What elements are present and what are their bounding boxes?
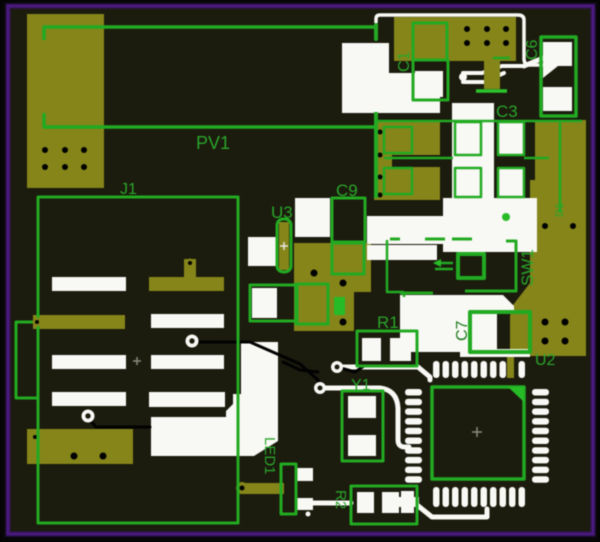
svg-text:SW1: SW1 xyxy=(518,249,537,286)
svg-text:C6: C6 xyxy=(524,39,541,60)
svg-text:C3: C3 xyxy=(496,102,518,121)
svg-text:C7: C7 xyxy=(454,320,471,341)
svg-text:C1: C1 xyxy=(396,51,413,72)
svg-text:PV1: PV1 xyxy=(196,133,230,153)
svg-text:J1: J1 xyxy=(120,181,137,198)
svg-text:U3: U3 xyxy=(271,203,293,222)
svg-text:LED1: LED1 xyxy=(261,437,278,475)
svg-text:Y1: Y1 xyxy=(351,377,371,394)
svg-text:D1: D1 xyxy=(554,203,566,217)
svg-text:U2: U2 xyxy=(535,352,556,369)
svg-text:R1: R1 xyxy=(377,313,399,332)
svg-text:C9: C9 xyxy=(336,181,358,200)
svg-text:R2: R2 xyxy=(332,490,349,509)
